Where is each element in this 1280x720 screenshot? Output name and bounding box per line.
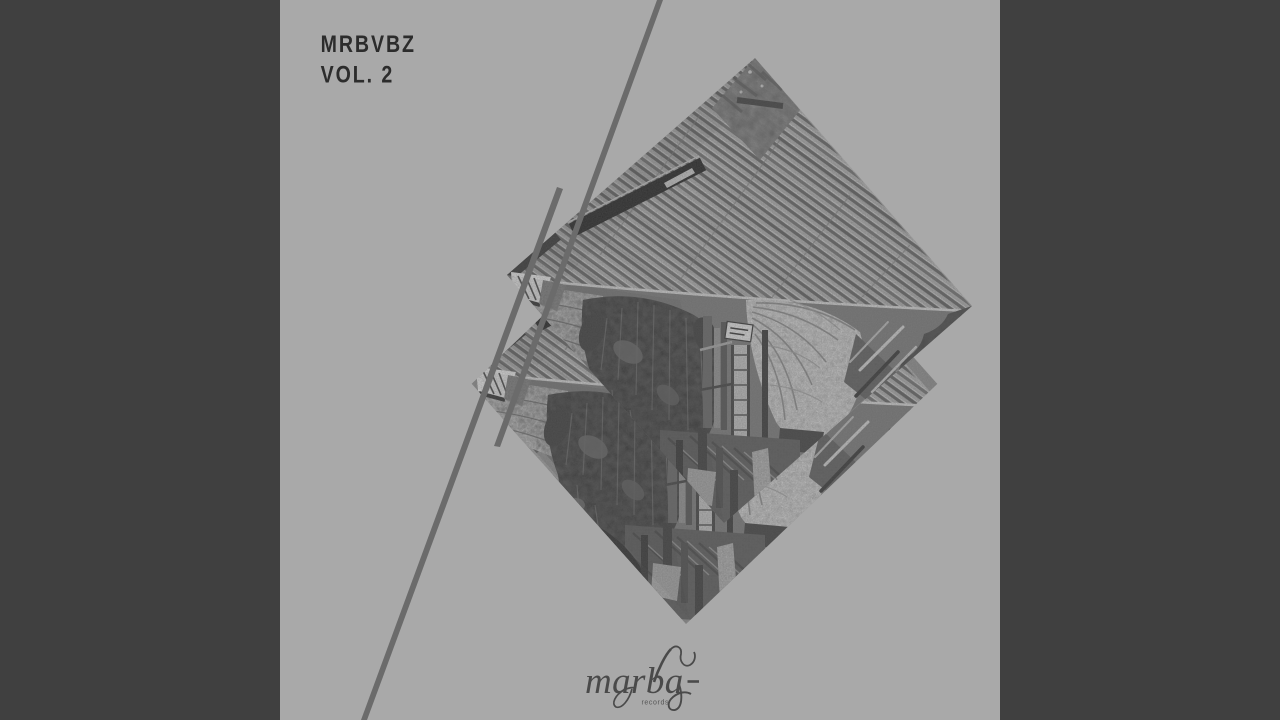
svg-text:MRBVBZ: MRBVBZ [321, 30, 416, 58]
svg-text:marba: marba [585, 661, 684, 702]
svg-text:VOL. 2: VOL. 2 [321, 60, 395, 88]
svg-text:records: records [642, 700, 670, 707]
